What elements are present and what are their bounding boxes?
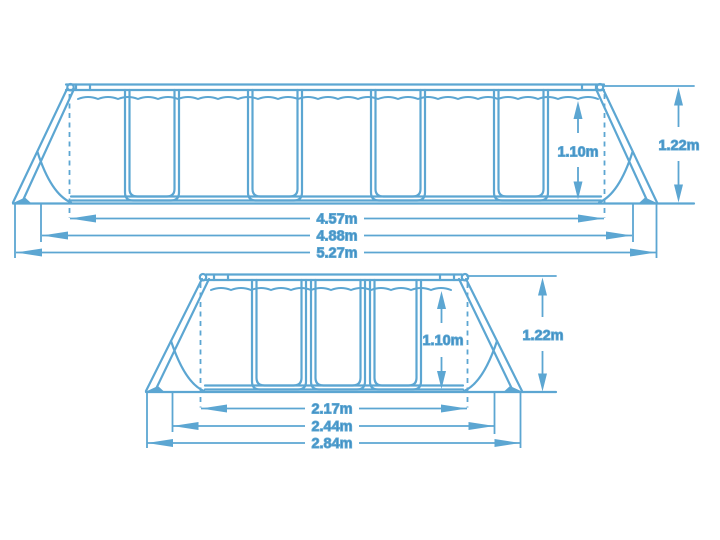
top-inner-width-label: 4.57m — [316, 212, 357, 228]
bottom-total-width-label: 2.84m — [311, 436, 352, 452]
top-total-width-label: 5.27m — [316, 246, 357, 262]
top-total-height-label: 1.22m — [658, 138, 699, 154]
bottom-inner-width-label: 2.17m — [311, 402, 352, 418]
top-base-width-label: 4.88m — [316, 229, 357, 245]
top-water-height-label: 1.10m — [557, 145, 598, 161]
bottom-pool-outline — [146, 274, 556, 392]
diagram-svg: 4.57m 4.88m 5.27m 1.10m 1.22m — [0, 0, 720, 540]
bottom-base-width-label: 2.44m — [311, 419, 352, 435]
bottom-view-diagram: 2.17m 2.44m 2.84m 1.10m 1.22m — [146, 274, 564, 452]
pool-dimension-diagram: 4.57m 4.88m 5.27m 1.10m 1.22m — [0, 0, 720, 540]
top-view-diagram: 4.57m 4.88m 5.27m 1.10m 1.22m — [13, 84, 700, 262]
bottom-total-height-label: 1.22m — [522, 328, 563, 344]
bottom-water-height-label: 1.10m — [422, 333, 463, 349]
